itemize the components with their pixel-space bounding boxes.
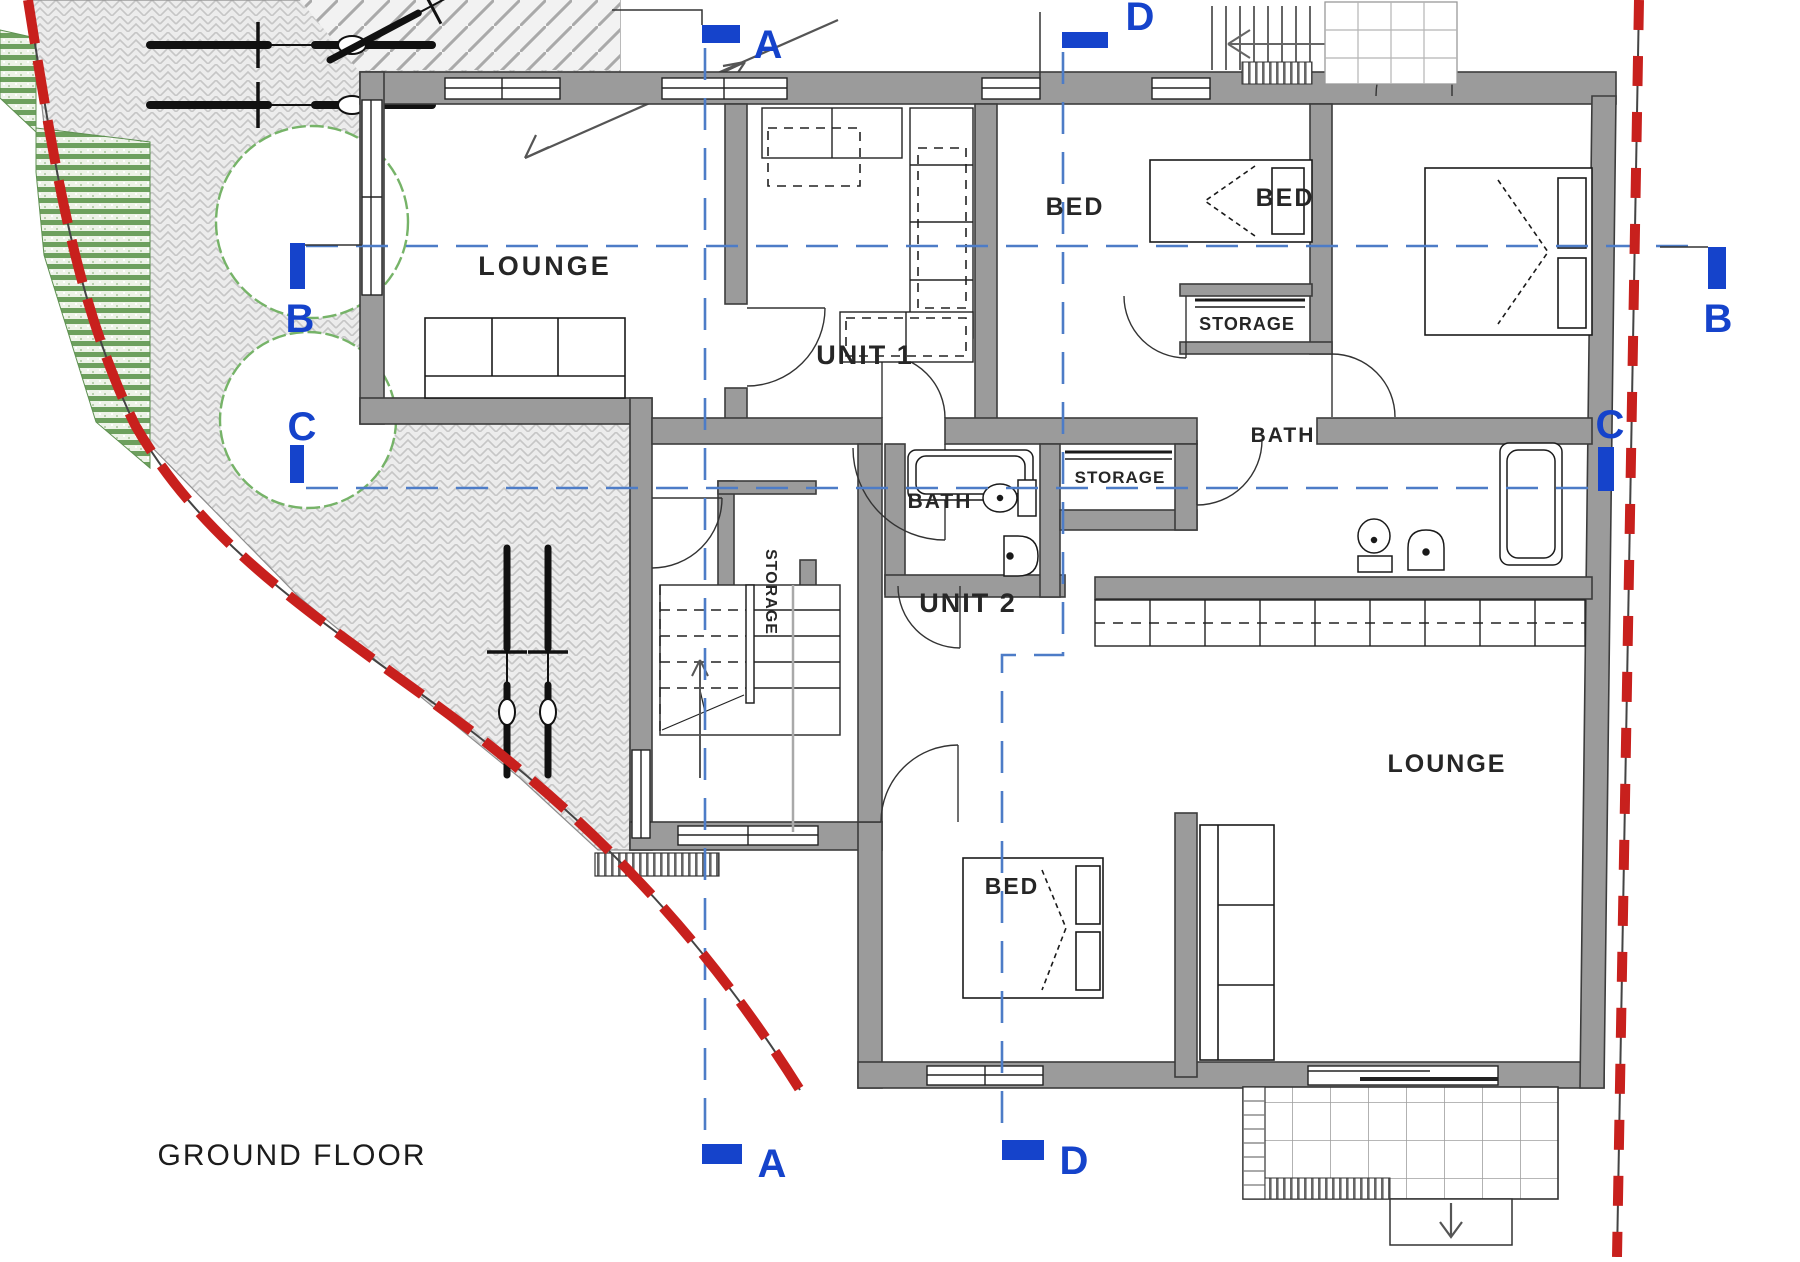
window-sliding-door — [1308, 1066, 1498, 1085]
external-stair — [1212, 6, 1338, 70]
section-marker-bar — [702, 1144, 742, 1164]
section-marker-letter: B — [1704, 297, 1733, 341]
unit2-label: UNIT 2 — [919, 588, 1017, 618]
section-marker-letter: C — [1596, 403, 1625, 447]
sink-icon — [1004, 536, 1038, 576]
room-label-bed3: BED — [985, 873, 1040, 899]
wall-middle-center — [945, 418, 1197, 444]
bathroom-fixtures — [908, 443, 1562, 576]
toilet-icon — [1358, 519, 1392, 572]
storage-shelf — [1195, 300, 1305, 307]
section-marker-letter: C — [288, 405, 317, 449]
window — [678, 826, 818, 845]
floor-plan-canvas: A D A D B C B C LOUNGE UNIT 1 BED BED ST… — [0, 0, 1800, 1257]
door — [1124, 296, 1186, 358]
sofa — [1200, 825, 1274, 1060]
door — [881, 745, 958, 822]
floor-plan-page: A D A D B C B C LOUNGE UNIT 1 BED BED ST… — [0, 0, 1800, 1257]
wall-lounge-kitchen — [725, 104, 747, 304]
room-label-lounge2: LOUNGE — [1388, 750, 1507, 778]
section-marker-bar — [702, 25, 740, 43]
deck-tactile — [1265, 1178, 1390, 1199]
boundary-stripes-right — [1617, 0, 1639, 1257]
room-label-bed1: BED — [1046, 193, 1105, 221]
door — [1197, 440, 1262, 505]
wall-bed1-bed2 — [1310, 104, 1332, 354]
wall-middle-left — [652, 418, 882, 444]
room-label-lounge1: LOUNGE — [478, 251, 612, 281]
section-marker-letter: D — [1060, 1139, 1089, 1183]
door — [1332, 354, 1395, 417]
kitchen-unit2-counter — [1095, 600, 1585, 646]
section-marker-bar — [290, 445, 304, 483]
window-corner — [362, 100, 382, 295]
room-label-storage1: STORAGE — [1199, 314, 1295, 334]
wall-storage1-north — [1180, 284, 1312, 296]
window — [445, 78, 560, 99]
green-strip-corner — [0, 30, 36, 132]
window — [982, 78, 1040, 99]
unit1-label: UNIT 1 — [816, 340, 914, 370]
wall-middle-right — [1317, 418, 1592, 444]
wall-bath1-west — [885, 444, 905, 594]
sofa — [425, 318, 625, 398]
window — [1152, 78, 1210, 99]
section-marker-bar — [1708, 247, 1726, 289]
page-title: GROUND FLOOR — [157, 1139, 426, 1172]
wall-lounge-south — [360, 398, 652, 424]
storage-shelf — [1065, 452, 1172, 459]
deck-patio — [1243, 1087, 1558, 1245]
sink-icon — [1408, 530, 1444, 570]
section-marker-letter: A — [758, 1142, 787, 1186]
internal-stair — [660, 585, 840, 832]
section-marker-bar — [1062, 32, 1108, 48]
wall-kitchen-bed1 — [975, 104, 997, 420]
kitchen-unit1 — [762, 108, 973, 362]
wall-bed3-lounge2 — [1175, 813, 1197, 1077]
bathtub — [1500, 443, 1562, 565]
section-marker-letter: A — [754, 23, 783, 67]
section-marker-bar — [290, 243, 305, 289]
deck-step-extension — [1390, 1199, 1512, 1245]
tactile-paving — [1242, 62, 1312, 84]
room-label-storage3: STORAGE — [762, 549, 779, 635]
door-entry — [652, 498, 722, 568]
wall-bath2-south — [1095, 577, 1592, 599]
window — [662, 78, 787, 99]
wall-bath1-east — [1040, 444, 1060, 597]
wall-unit2-west — [858, 822, 882, 1088]
room-label-bed2: BED — [1256, 184, 1315, 212]
room-label-storage2: STORAGE — [1075, 468, 1166, 487]
window — [927, 1066, 1043, 1085]
room-label-bath1: BATH — [908, 490, 973, 513]
bed-double — [1425, 168, 1592, 335]
door — [747, 308, 825, 386]
wall-storage1-south — [1180, 342, 1332, 354]
window — [632, 750, 650, 838]
deck-steps — [1243, 1087, 1265, 1199]
room-label-bath2: BATH — [1251, 424, 1316, 447]
section-marker-bar — [1598, 447, 1614, 491]
section-marker-bar — [1002, 1140, 1044, 1160]
section-marker-letter: B — [286, 297, 315, 341]
section-marker-letter: D — [1126, 0, 1155, 39]
